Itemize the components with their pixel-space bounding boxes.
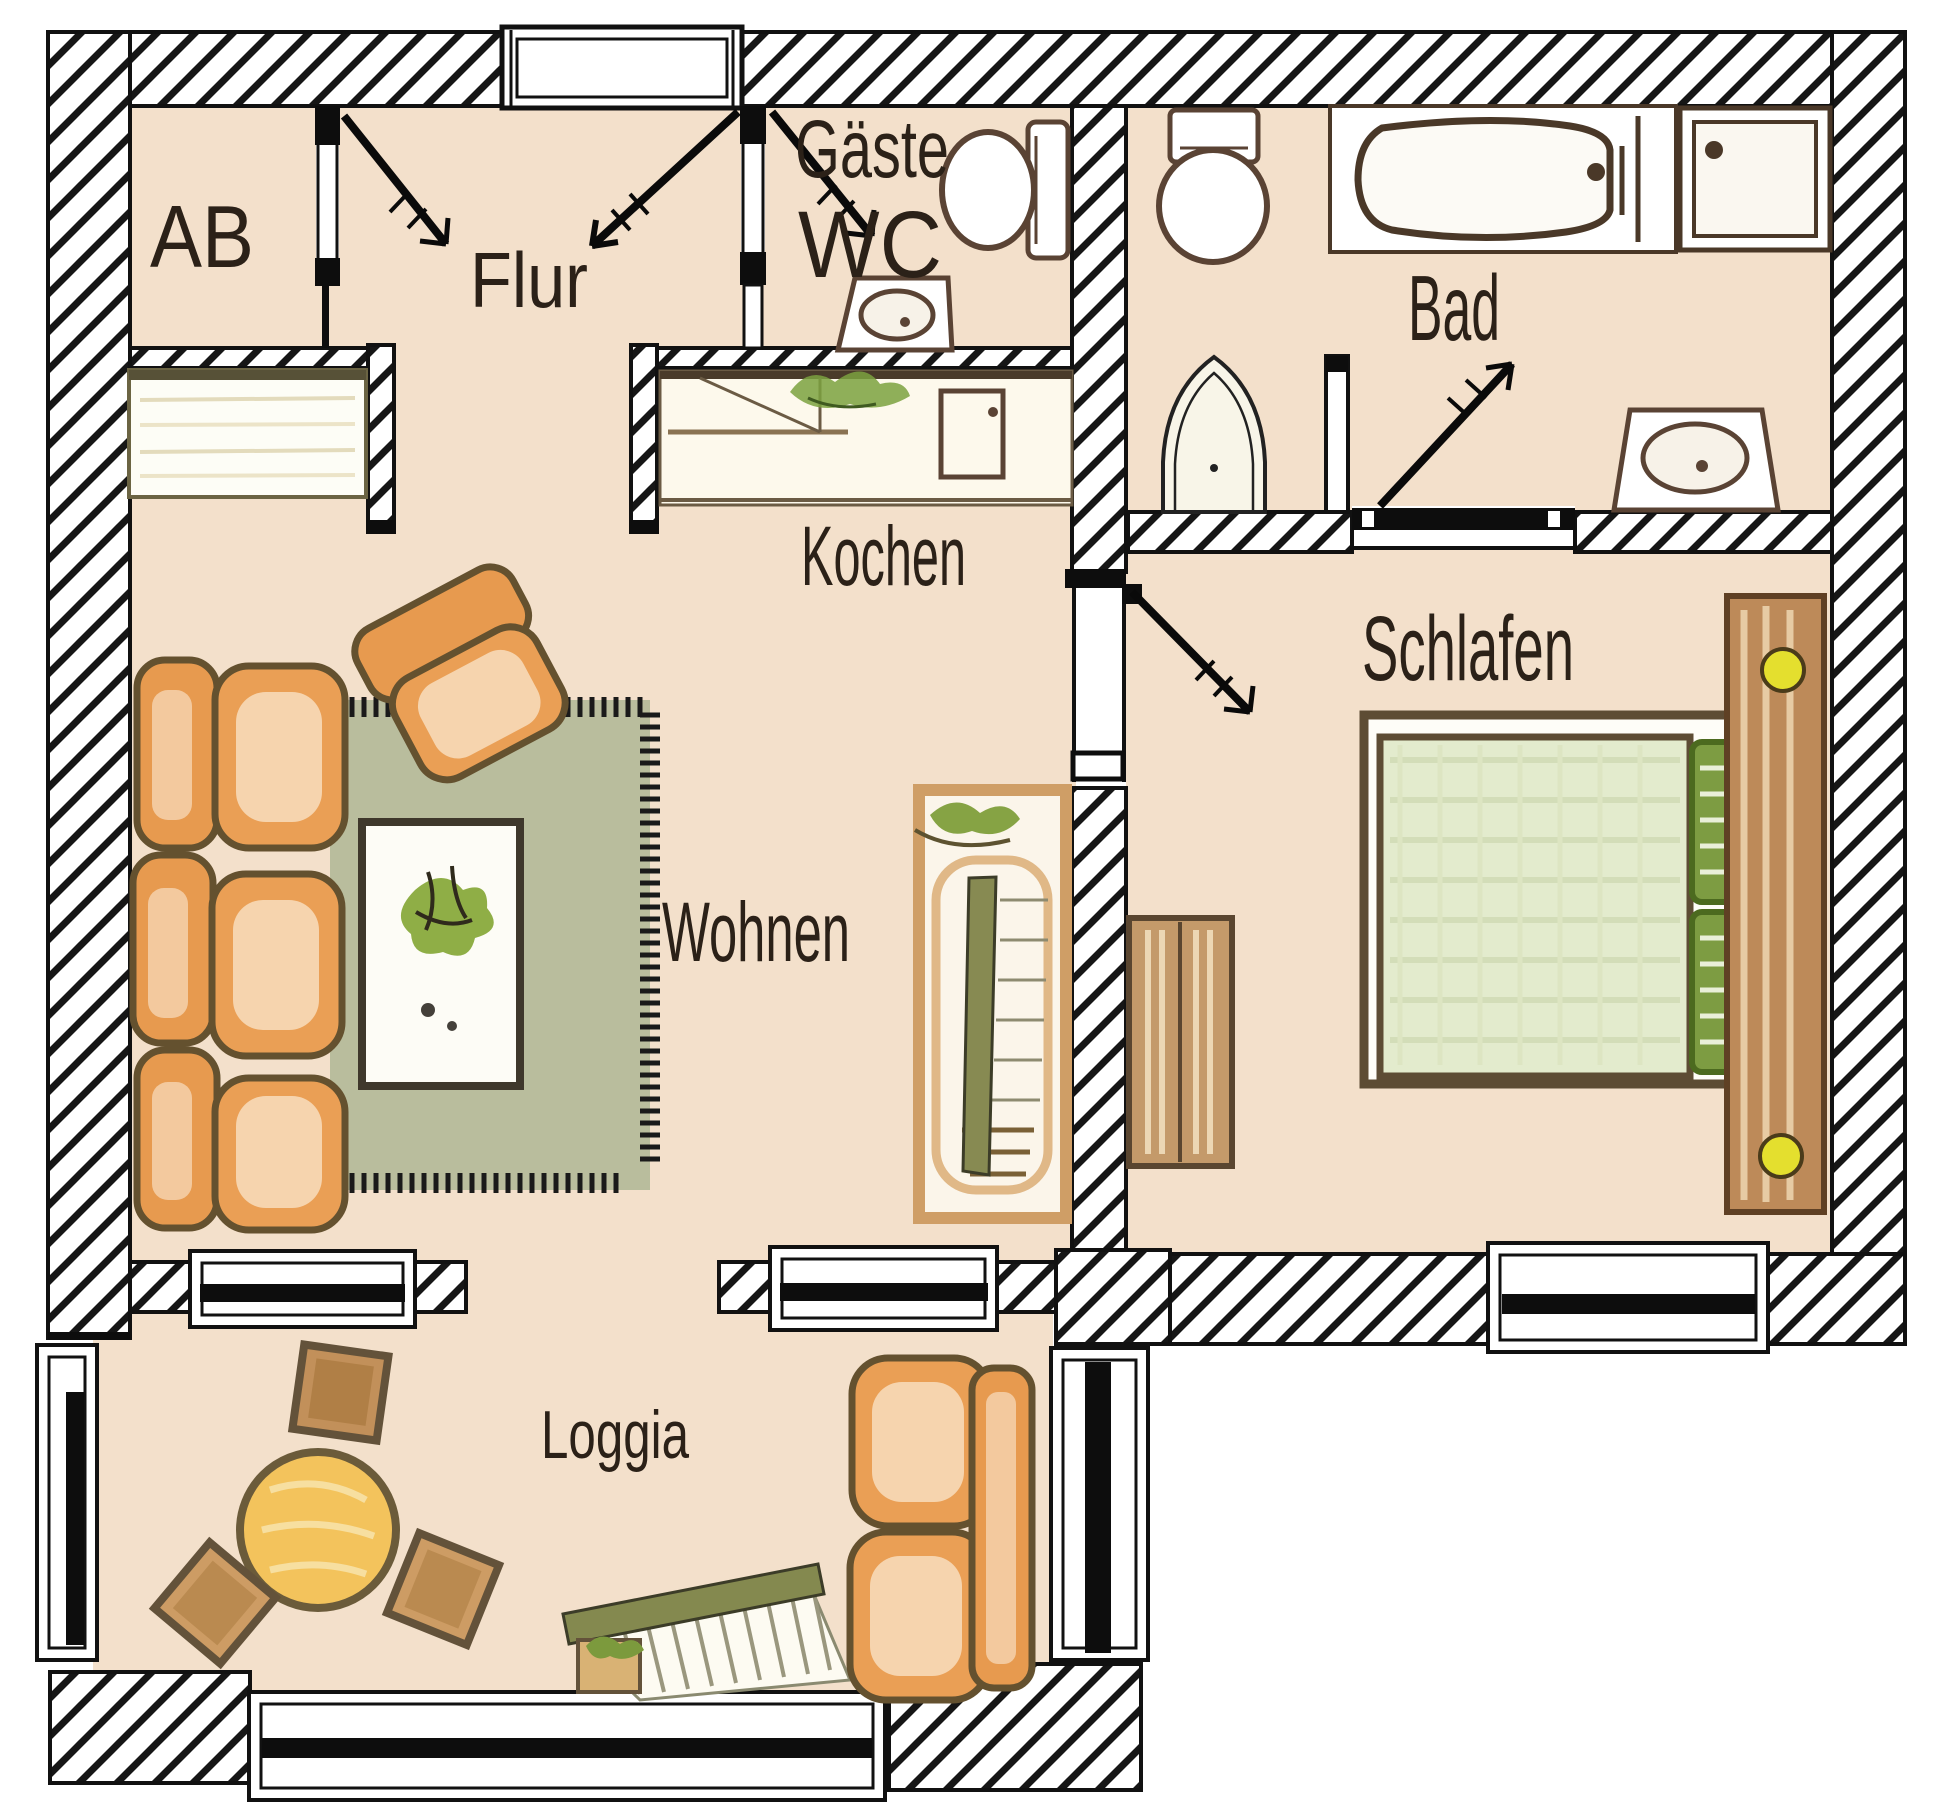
svg-text:Schlafen: Schlafen <box>1362 598 1574 700</box>
svg-text:Gäste: Gäste <box>795 104 949 195</box>
svg-text:AB: AB <box>150 187 254 286</box>
svg-text:WC: WC <box>798 192 942 298</box>
svg-text:Bad: Bad <box>1408 256 1500 360</box>
svg-text:Flur: Flur <box>470 236 588 324</box>
svg-text:Wohnen: Wohnen <box>662 885 850 979</box>
svg-text:Kochen: Kochen <box>801 509 966 603</box>
svg-text:Loggia: Loggia <box>541 1397 689 1473</box>
